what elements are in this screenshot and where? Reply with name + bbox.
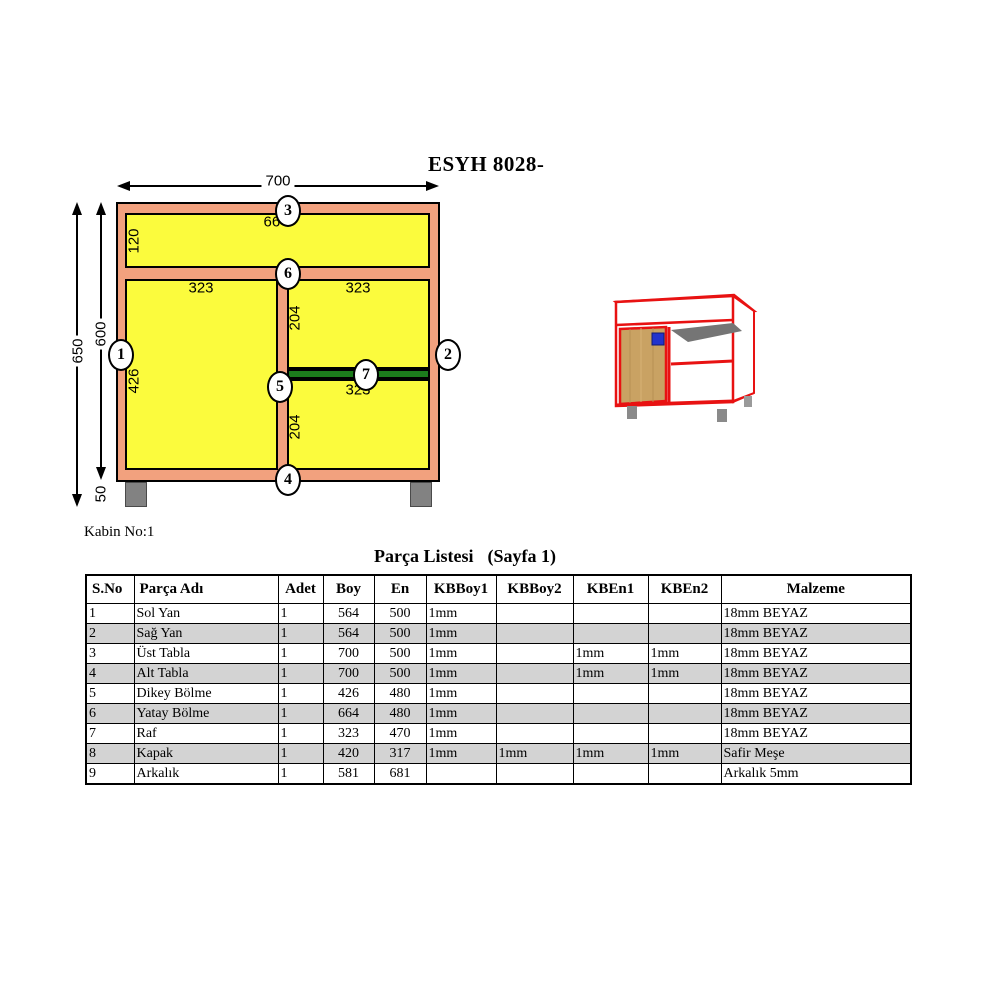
table-cell: 1 — [278, 744, 323, 764]
dim-label-height-600: 600 — [93, 318, 110, 349]
parts-table: S.NoParça AdıAdetBoyEnKBBoy1KBBoy2KBEn1K… — [85, 574, 912, 785]
table-cell: Safir Meşe — [721, 744, 911, 764]
table-row: 7Raf13234701mm18mm BEYAZ — [86, 724, 911, 744]
table-cell — [648, 604, 721, 624]
table-cell: 1 — [86, 604, 134, 624]
table-cell: 1 — [278, 644, 323, 664]
table-cell: 700 — [323, 644, 374, 664]
table-cell: 1mm — [573, 744, 648, 764]
table-cell: 480 — [374, 684, 426, 704]
table-cell: 1mm — [573, 664, 648, 684]
table-cell: 18mm BEYAZ — [721, 684, 911, 704]
table-cell — [496, 724, 573, 744]
table-cell: Arkalık — [134, 764, 278, 785]
part-marker-6: 6 — [275, 258, 301, 290]
part-marker-2: 2 — [435, 339, 461, 371]
part-marker-4: 4 — [275, 464, 301, 496]
table-cell: 7 — [86, 724, 134, 744]
parts-list-page-label: (Sayfa 1) — [487, 546, 556, 566]
parts-table-body: 1Sol Yan15645001mm18mm BEYAZ2Sağ Yan1564… — [86, 604, 911, 785]
table-cell: 1mm — [426, 744, 496, 764]
table-cell: 564 — [323, 604, 374, 624]
table-cell: 1mm — [426, 684, 496, 704]
table-cell: 1mm — [426, 644, 496, 664]
table-cell: 664 — [323, 704, 374, 724]
table-cell — [573, 724, 648, 744]
parts-list-title-text: Parça Listesi — [374, 546, 473, 566]
table-cell — [573, 764, 648, 785]
cabin-number-note: Kabin No:1 — [84, 524, 154, 541]
table-cell: Dikey Bölme — [134, 684, 278, 704]
column-header: Malzeme — [721, 575, 911, 604]
dim-label-width-700: 700 — [261, 173, 294, 190]
table-cell: 1 — [278, 684, 323, 704]
table-row: 3Üst Tabla17005001mm1mm1mm18mm BEYAZ — [86, 644, 911, 664]
table-cell: 681 — [374, 764, 426, 785]
table-cell: 500 — [374, 664, 426, 684]
table-row: 1Sol Yan15645001mm18mm BEYAZ — [86, 604, 911, 624]
table-cell: 18mm BEYAZ — [721, 724, 911, 744]
table-cell: 564 — [323, 624, 374, 644]
table-cell: 500 — [374, 644, 426, 664]
spec-sheet-page: ESYH 8028- 700 664 650 600 120 426 50 32… — [0, 0, 1000, 1000]
preview-leg-back-right — [744, 396, 752, 407]
dim-label-legs-50: 50 — [93, 483, 110, 506]
column-header: S.No — [86, 575, 134, 604]
table-cell — [573, 704, 648, 724]
table-cell — [648, 704, 721, 724]
table-cell: 480 — [374, 704, 426, 724]
part-marker-3: 3 — [275, 195, 301, 227]
cabinet-panel-left-door-area — [125, 279, 278, 470]
table-row: 8Kapak14203171mm1mm1mm1mmSafir Meşe — [86, 744, 911, 764]
table-cell: 500 — [374, 604, 426, 624]
table-cell: Sol Yan — [134, 604, 278, 624]
table-cell — [648, 724, 721, 744]
table-cell: 500 — [374, 624, 426, 644]
dim-label-shelf-right-323: 323 — [345, 281, 370, 296]
table-cell: Sağ Yan — [134, 624, 278, 644]
table-cell: 8 — [86, 744, 134, 764]
table-cell: 5 — [86, 684, 134, 704]
table-cell: 317 — [374, 744, 426, 764]
preview-leg-front-left — [627, 406, 637, 419]
table-cell: 1mm — [426, 704, 496, 724]
table-cell — [648, 684, 721, 704]
table-cell: 700 — [323, 664, 374, 684]
table-cell: 18mm BEYAZ — [721, 644, 911, 664]
table-cell — [496, 764, 573, 785]
table-cell: Kapak — [134, 744, 278, 764]
table-row: 6Yatay Bölme16644801mm18mm BEYAZ — [86, 704, 911, 724]
table-cell: 323 — [323, 724, 374, 744]
cabinet-leg-left — [125, 482, 147, 507]
table-cell: 1mm — [573, 644, 648, 664]
dim-label-section-120: 120 — [127, 228, 142, 253]
table-cell: 3 — [86, 644, 134, 664]
table-cell: 18mm BEYAZ — [721, 624, 911, 644]
column-header: KBBoy2 — [496, 575, 573, 604]
table-cell: 6 — [86, 704, 134, 724]
table-cell: 18mm BEYAZ — [721, 664, 911, 684]
table-cell: Yatay Bölme — [134, 704, 278, 724]
table-cell — [496, 704, 573, 724]
table-cell: 4 — [86, 664, 134, 684]
preview-side-panel — [733, 296, 754, 402]
preview-door-handle — [652, 333, 664, 345]
column-header: En — [374, 575, 426, 604]
table-cell: 1 — [278, 724, 323, 744]
table-row: 4Alt Tabla17005001mm1mm1mm18mm BEYAZ — [86, 664, 911, 684]
table-cell — [496, 644, 573, 664]
table-cell: 1mm — [648, 664, 721, 684]
table-cell — [648, 764, 721, 785]
table-cell: 1mm — [426, 624, 496, 644]
table-row: 9Arkalık1581681Arkalık 5mm — [86, 764, 911, 785]
table-cell: Alt Tabla — [134, 664, 278, 684]
dim-label-height-650: 650 — [70, 335, 87, 366]
table-cell: 18mm BEYAZ — [721, 604, 911, 624]
table-cell: 470 — [374, 724, 426, 744]
table-cell: 1 — [278, 624, 323, 644]
dim-label-gap-lower-204: 204 — [288, 414, 303, 439]
table-cell: 1mm — [426, 604, 496, 624]
part-marker-1: 1 — [108, 339, 134, 371]
dimension-lines — [0, 0, 1000, 1000]
table-cell — [496, 664, 573, 684]
table-cell — [426, 764, 496, 785]
cabinet-3d-preview — [600, 285, 780, 425]
parts-table-header-row: S.NoParça AdıAdetBoyEnKBBoy1KBBoy2KBEn1K… — [86, 575, 911, 604]
table-cell: 18mm BEYAZ — [721, 704, 911, 724]
dim-label-shelf-left-323: 323 — [188, 281, 213, 296]
column-header: Boy — [323, 575, 374, 604]
table-cell: 1 — [278, 704, 323, 724]
table-cell: 1 — [278, 664, 323, 684]
dim-label-gap-upper-204: 204 — [288, 305, 303, 330]
table-cell: 581 — [323, 764, 374, 785]
table-cell — [573, 684, 648, 704]
table-cell — [648, 624, 721, 644]
dim-label-section-426: 426 — [127, 368, 142, 393]
column-header: Parça Adı — [134, 575, 278, 604]
table-cell: 1mm — [648, 744, 721, 764]
table-cell — [496, 684, 573, 704]
column-header: KBBoy1 — [426, 575, 496, 604]
table-cell: 1mm — [496, 744, 573, 764]
table-cell: 1mm — [648, 644, 721, 664]
table-cell: 420 — [323, 744, 374, 764]
table-cell — [496, 604, 573, 624]
column-header: KBEn1 — [573, 575, 648, 604]
table-row: 5Dikey Bölme14264801mm18mm BEYAZ — [86, 684, 911, 704]
table-cell: 9 — [86, 764, 134, 785]
part-marker-5: 5 — [267, 371, 293, 403]
column-header: Adet — [278, 575, 323, 604]
table-cell: 1mm — [426, 724, 496, 744]
table-cell: Arkalık 5mm — [721, 764, 911, 785]
table-cell — [573, 604, 648, 624]
table-cell: 2 — [86, 624, 134, 644]
part-marker-7: 7 — [353, 359, 379, 391]
table-cell — [496, 624, 573, 644]
column-header: KBEn2 — [648, 575, 721, 604]
table-cell: Üst Tabla — [134, 644, 278, 664]
table-cell: Raf — [134, 724, 278, 744]
preview-leg-front-right — [717, 409, 727, 422]
table-cell — [573, 624, 648, 644]
table-row: 2Sağ Yan15645001mm18mm BEYAZ — [86, 624, 911, 644]
parts-list-title: Parça Listesi(Sayfa 1) — [374, 546, 556, 567]
table-cell: 1 — [278, 604, 323, 624]
table-cell: 426 — [323, 684, 374, 704]
table-cell: 1mm — [426, 664, 496, 684]
product-code-title: ESYH 8028- — [428, 152, 544, 177]
cabinet-leg-right — [410, 482, 432, 507]
table-cell: 1 — [278, 764, 323, 785]
